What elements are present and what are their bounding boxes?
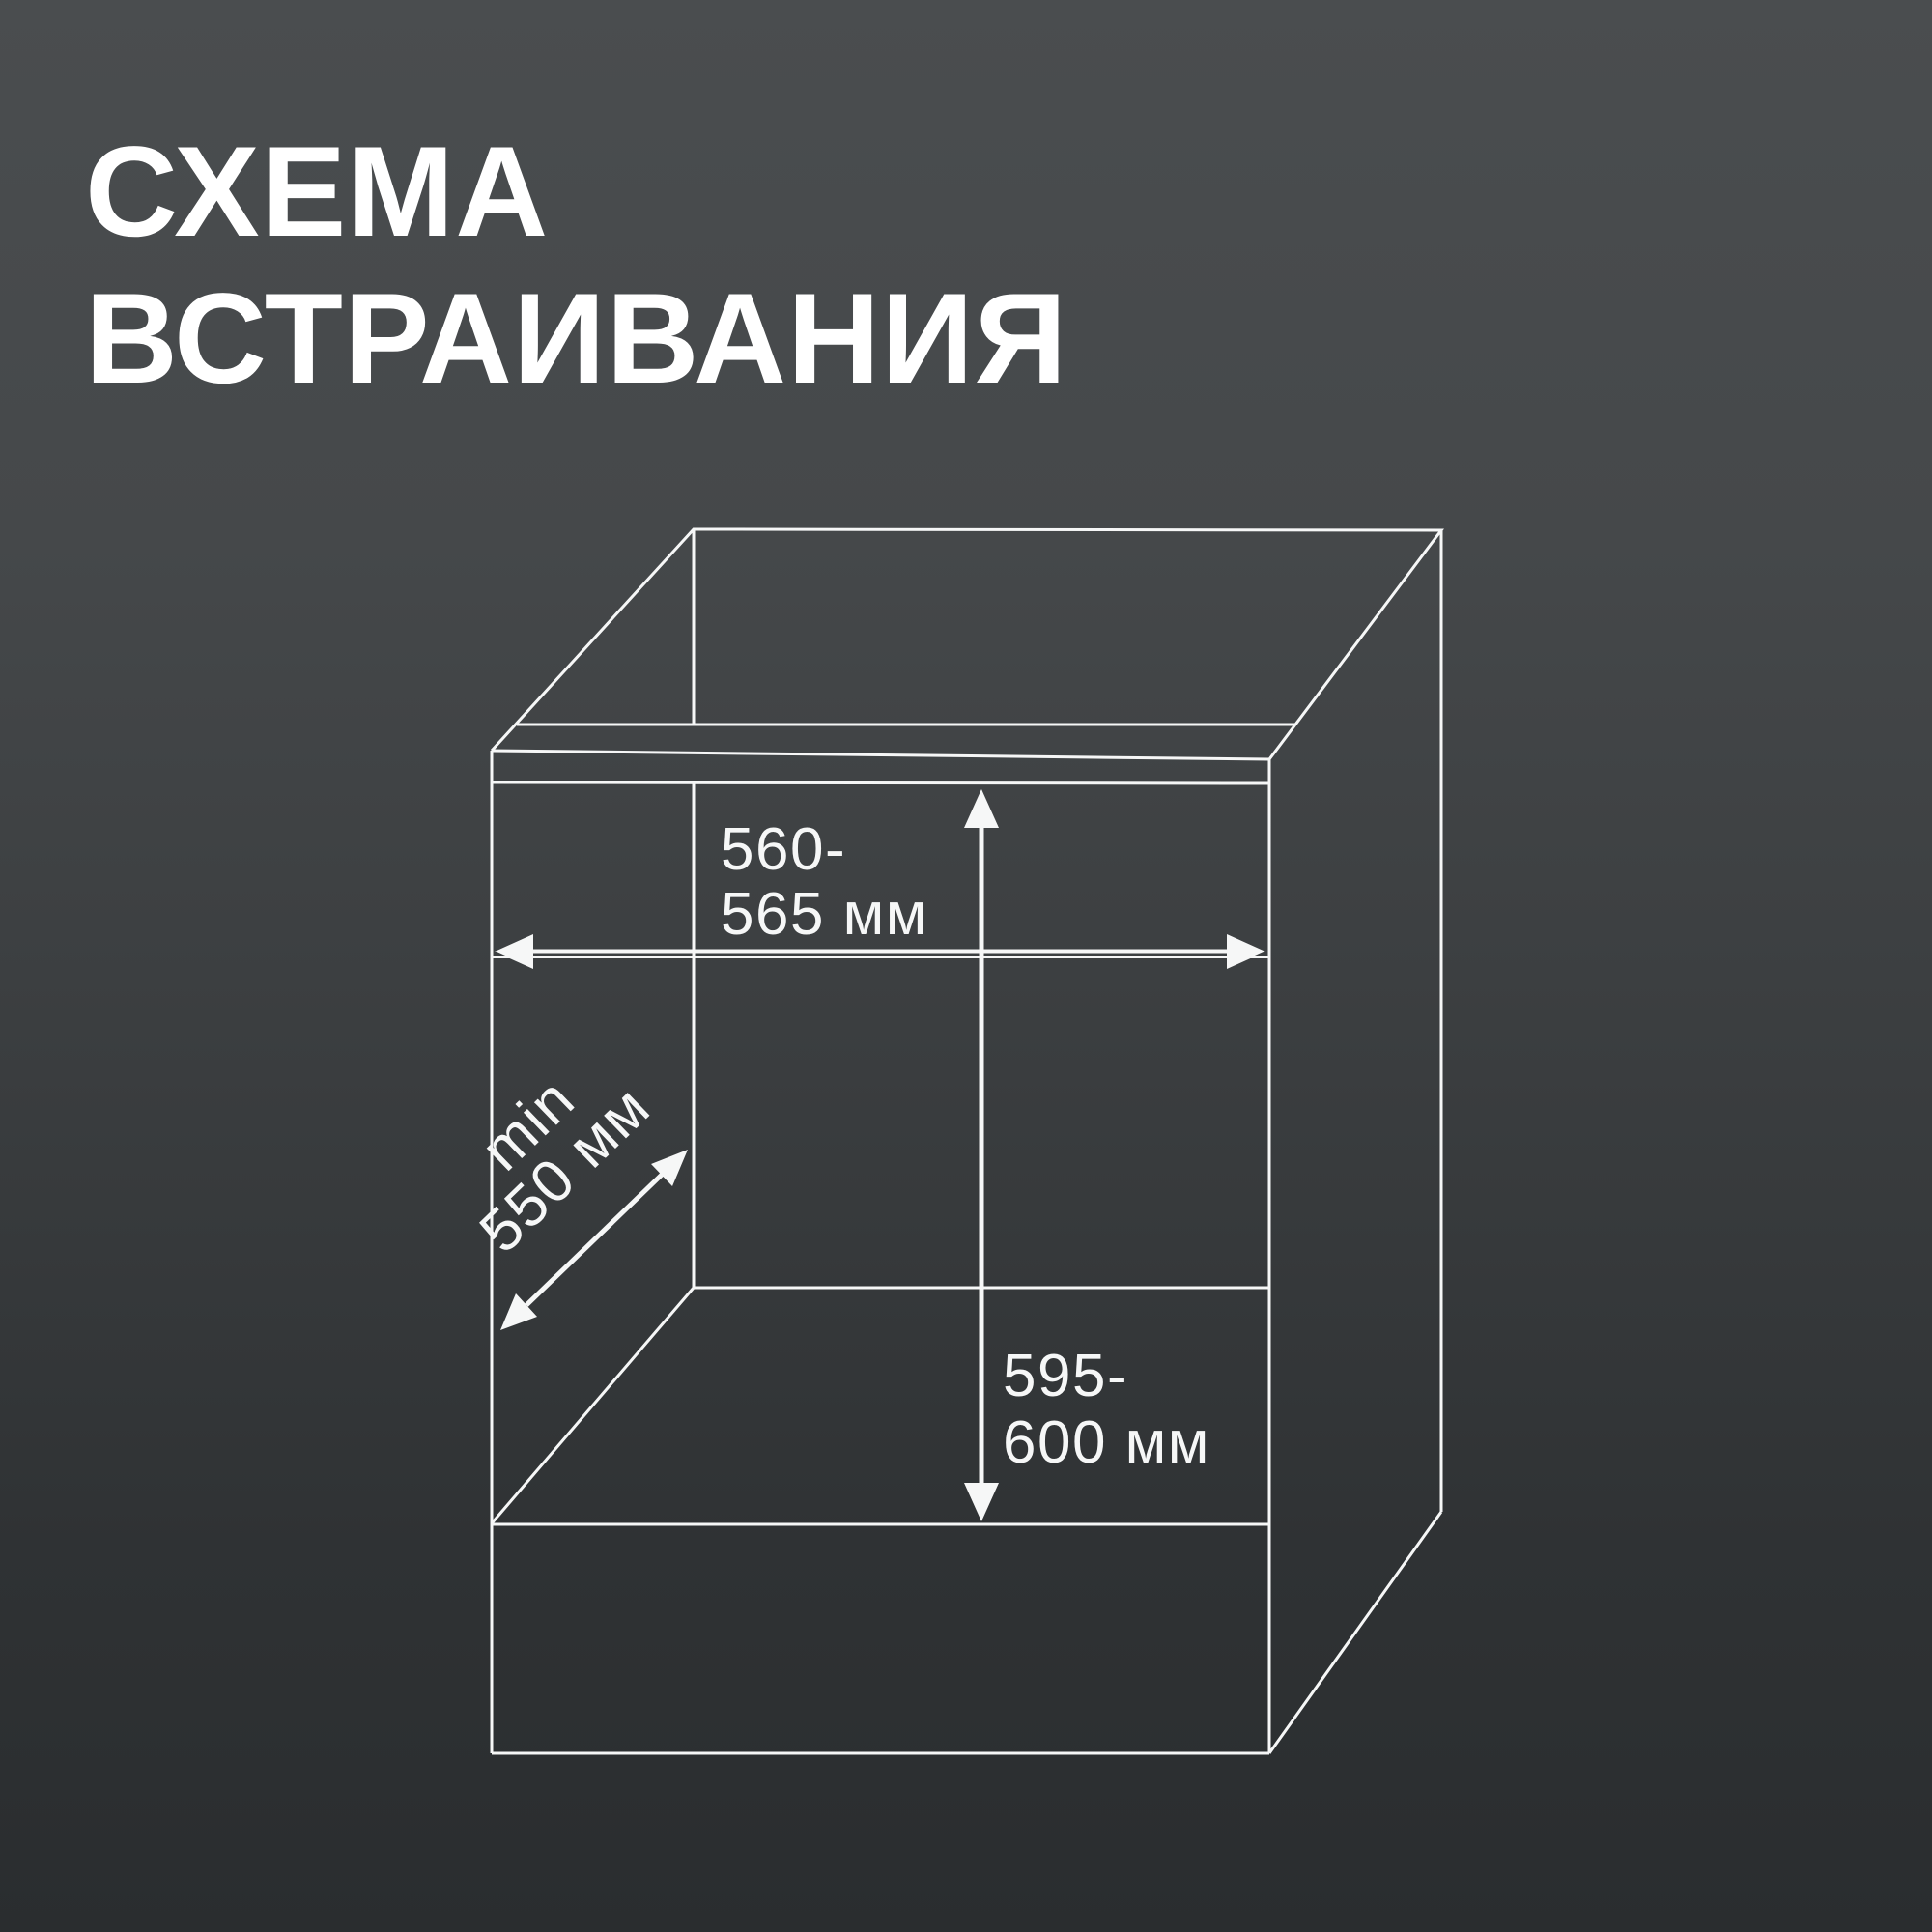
height-dimension: 595- 600 мм (964, 789, 1210, 1521)
width-dimension-arrowhead-left (495, 934, 533, 969)
depth-dimension-label: min 550 мм (427, 1032, 663, 1265)
depth-dimension: min 550 мм (427, 1032, 688, 1330)
width-dimension-label-line1: 560- (721, 816, 846, 883)
niche-floor-left-edge (492, 1288, 694, 1523)
countertop-front-bottom-edge (492, 782, 1269, 783)
cabinet-bottom-right-edge (1269, 1512, 1441, 1753)
infographic-page: { "title": { "line1": "СХЕМА", "line2": … (0, 0, 1932, 1932)
page-title-line1: СХЕМА (85, 121, 549, 264)
width-dimension: 560- 565 мм (495, 816, 1265, 969)
installation-diagram: СХЕМА ВСТРАИВАНИЯ (0, 0, 1932, 1932)
height-dimension-label-line2: 600 мм (1003, 1409, 1210, 1476)
height-dimension-arrowhead-top (964, 789, 999, 828)
width-dimension-label-line2: 565 мм (721, 881, 928, 948)
countertop-front-top-edge (492, 751, 1269, 759)
height-dimension-arrowhead-bottom (964, 1483, 999, 1521)
page-title-line2: ВСТРАИВАНИЯ (85, 268, 1067, 411)
height-dimension-label-line1: 595- (1003, 1343, 1128, 1409)
width-dimension-arrowhead-right (1227, 934, 1265, 969)
